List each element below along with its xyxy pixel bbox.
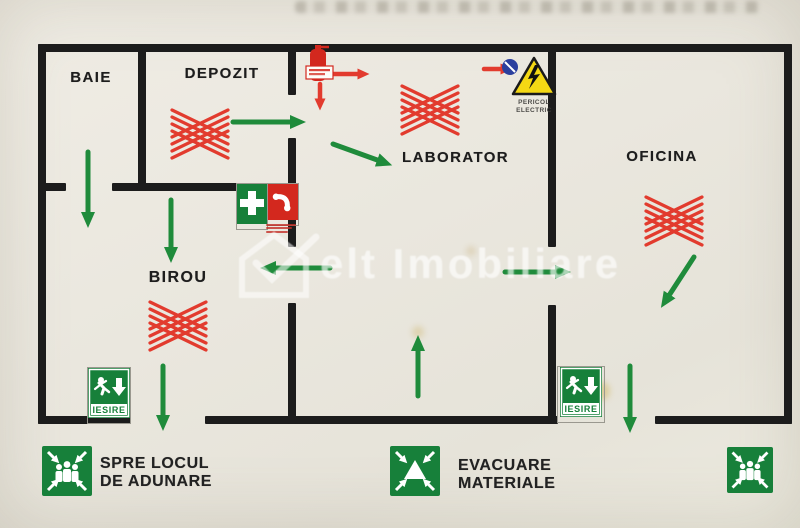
emergency-phone-icon bbox=[268, 184, 298, 225]
legend-materials-line1: EVACUARE bbox=[458, 457, 556, 475]
room-label-depozit: DEPOZIT bbox=[182, 65, 262, 82]
evacuate-materials-icon bbox=[390, 446, 440, 501]
blocked-area-marker-depozit bbox=[172, 110, 228, 158]
blocked-area-marker-laborator bbox=[402, 86, 458, 134]
electric-sign-line2: ELECTRIC bbox=[516, 107, 552, 114]
legend-assembly-text: SPRE LOCUL DE ADUNARE bbox=[100, 455, 212, 490]
wall-segment bbox=[38, 183, 66, 191]
route-arrow-oficina-diagonal bbox=[668, 257, 694, 297]
wall-segment bbox=[38, 44, 46, 424]
fire-extinguisher-icon bbox=[302, 44, 342, 93]
wall-segment bbox=[548, 305, 556, 424]
legend-materials-text: EVACUARE MATERIALE bbox=[458, 457, 556, 492]
evacuation-plan-photo: BAIE DEPOZIT LABORATOR OFICINA BIROU bbox=[0, 0, 800, 528]
exit-sign-left: IESIRE bbox=[88, 368, 130, 423]
legend-materials-line2: MATERIALE bbox=[458, 475, 556, 493]
watermark-house-icon bbox=[228, 225, 320, 303]
wall-segment bbox=[288, 303, 296, 424]
showthrough-text-smudge bbox=[295, 1, 760, 13]
room-label-laborator: LABORATOR bbox=[402, 149, 498, 166]
exit-sign-right-label: IESIRE bbox=[564, 404, 597, 414]
exit-sign-left-label: IESIRE bbox=[92, 405, 125, 415]
wall-segment bbox=[784, 44, 792, 424]
room-label-birou: BIROU bbox=[140, 269, 216, 287]
blocked-area-marker-birou bbox=[150, 302, 206, 350]
assembly-point-icon bbox=[727, 446, 773, 499]
first-aid-cross-icon bbox=[237, 184, 267, 229]
watermark-text: elt Imobiliare bbox=[320, 224, 621, 304]
phone-sign-caption-illegible bbox=[266, 222, 299, 234]
wall-segment bbox=[655, 416, 792, 424]
room-label-baie: BAIE bbox=[56, 69, 126, 86]
legend-assembly-line2: DE ADUNARE bbox=[100, 473, 212, 491]
wall-segment bbox=[138, 44, 146, 191]
room-label-oficina: OFICINA bbox=[622, 148, 702, 165]
watermark: elt Imobiliare bbox=[228, 224, 621, 304]
wall-segment bbox=[205, 416, 558, 424]
wall-segment bbox=[38, 44, 792, 52]
electric-hazard-sign: PERICOL ELECTRIC bbox=[500, 54, 558, 121]
exit-sign-right: IESIRE bbox=[558, 367, 604, 422]
blocked-area-marker-oficina bbox=[646, 197, 702, 245]
assembly-point-icon bbox=[42, 446, 92, 501]
paper-stain bbox=[412, 326, 424, 338]
route-arrow-to-laborator bbox=[333, 144, 380, 161]
paper-stain bbox=[466, 246, 476, 256]
electric-sign-line1: PERICOL bbox=[518, 99, 550, 106]
legend-assembly-line1: SPRE LOCUL bbox=[100, 455, 212, 473]
wall-segment bbox=[288, 44, 296, 95]
